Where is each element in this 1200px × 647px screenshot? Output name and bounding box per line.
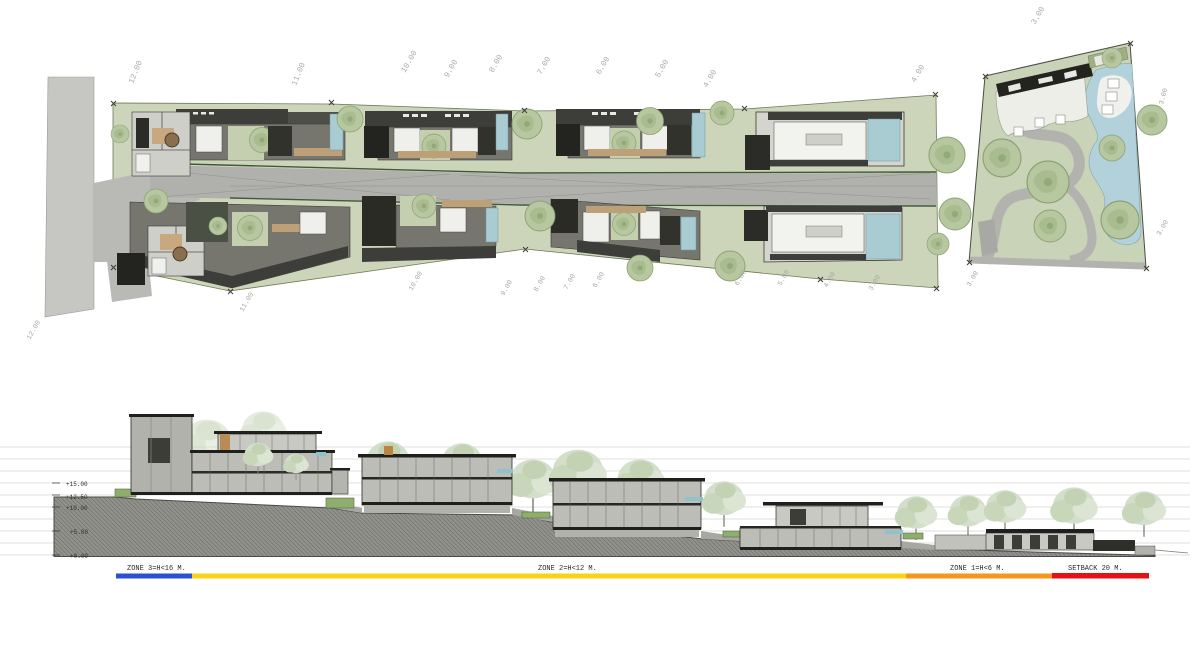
svg-text:+12.50: +12.50 xyxy=(66,494,88,501)
svg-text:+15.00: +15.00 xyxy=(66,481,88,488)
svg-text:ZONE 1=H<6 M.: ZONE 1=H<6 M. xyxy=(950,565,1005,573)
svg-text:+0.00: +0.00 xyxy=(70,553,88,560)
svg-text:SETBACK 20 M.: SETBACK 20 M. xyxy=(1068,565,1123,573)
svg-text:+5.00: +5.00 xyxy=(70,529,88,536)
svg-text:+10.00: +10.00 xyxy=(66,505,88,512)
svg-text:ZONE 3=H<16 M.: ZONE 3=H<16 M. xyxy=(127,565,186,573)
svg-text:ZONE 2=H<12 M.: ZONE 2=H<12 M. xyxy=(538,565,597,573)
